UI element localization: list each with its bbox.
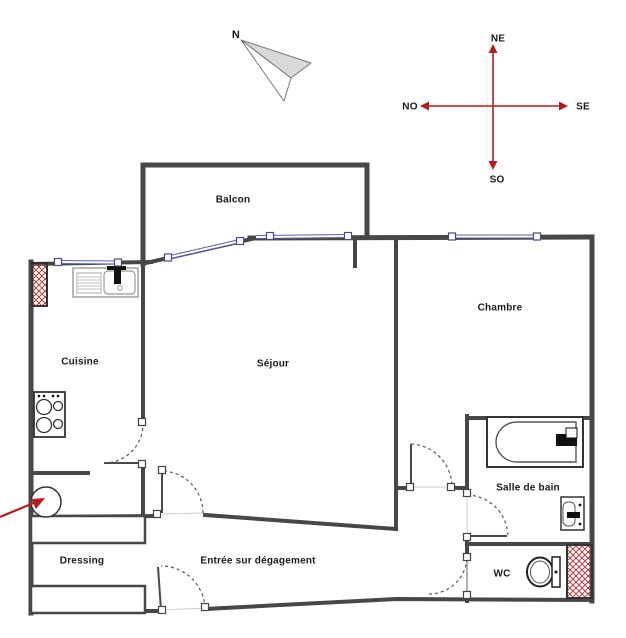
compass-label-no: NO [402, 102, 417, 113]
north-label: N [232, 29, 240, 41]
compass-label-ne: NE [491, 34, 505, 45]
room-label-cuisine: Cuisine [61, 357, 99, 368]
compass-label-se: SE [576, 102, 590, 113]
duct-shaft-kitchen [32, 263, 47, 306]
floor-plan-drawing [0, 0, 626, 638]
kitchen-sink [73, 266, 138, 297]
room-label-salle-de-bain: Salle de bain [496, 483, 560, 494]
wardrobe-top [31, 516, 145, 543]
wardrobe-bottom [31, 586, 145, 613]
bathtub [487, 417, 583, 467]
doors [104, 419, 508, 614]
floor-plan: N NE NO SE SO Balcon Cuisine Séjour Cham… [0, 0, 626, 638]
door-jamb-squares [139, 419, 471, 614]
washbasin [561, 497, 584, 530]
stove-top [34, 392, 65, 437]
room-label-dressing: Dressing [60, 556, 104, 567]
room-label-sejour: Séjour [257, 359, 289, 370]
north-arrow-icon [241, 40, 311, 101]
compass-label-so: SO [490, 175, 505, 186]
room-label-balcon: Balcon [216, 195, 251, 206]
toilet [527, 557, 560, 587]
room-label-entree: Entrée sur dégagement [200, 556, 315, 567]
balcony-walls [143, 165, 367, 264]
room-label-wc: WC [493, 569, 510, 580]
room-label-chambre: Chambre [478, 303, 523, 314]
compass-rose-icon [420, 44, 568, 170]
duct-shaft-wc [567, 545, 592, 598]
